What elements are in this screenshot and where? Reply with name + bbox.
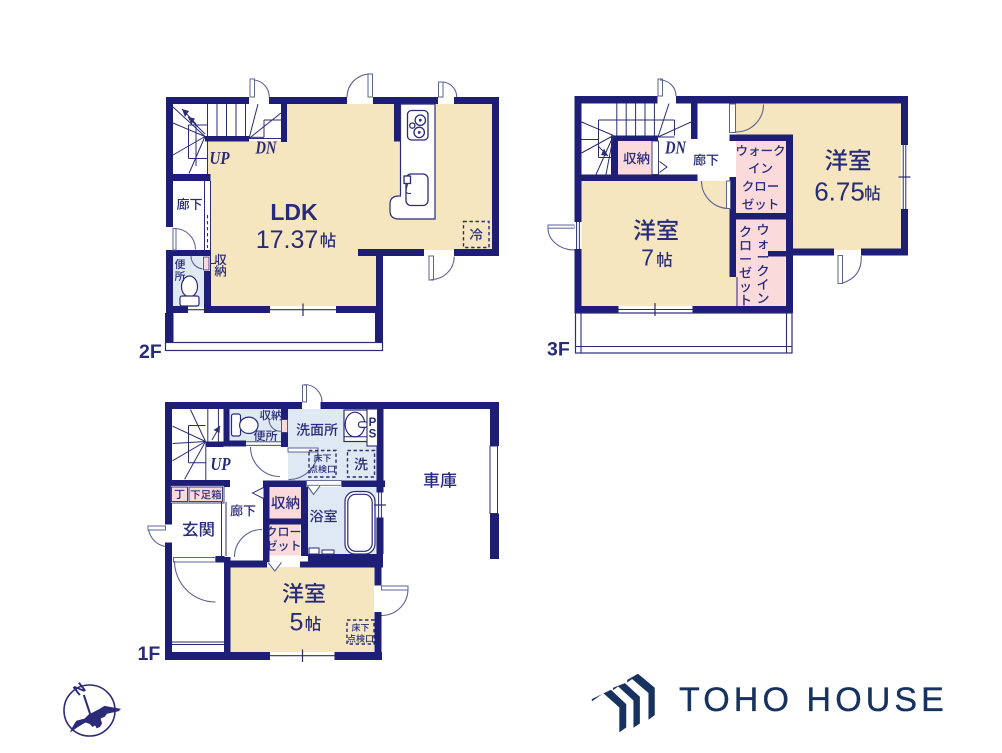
svg-text:DN: DN — [664, 138, 687, 158]
svg-text:UP: UP — [211, 454, 232, 474]
svg-text:P: P — [369, 417, 377, 429]
svg-text:LDK: LDK — [270, 199, 318, 225]
svg-text:5: 5 — [290, 609, 304, 637]
svg-text:UP: UP — [210, 148, 231, 168]
svg-text:17.37: 17.37 — [256, 226, 319, 254]
svg-text:6.75: 6.75 — [814, 177, 865, 207]
svg-text:S: S — [369, 429, 377, 441]
svg-text:3F: 3F — [547, 339, 570, 361]
svg-text:DN: DN — [255, 138, 278, 158]
svg-text:1F: 1F — [138, 643, 161, 665]
svg-text:TOHO HOUSE: TOHO HOUSE — [679, 681, 948, 719]
svg-text:2F: 2F — [139, 341, 162, 363]
svg-text:7: 7 — [641, 245, 654, 271]
